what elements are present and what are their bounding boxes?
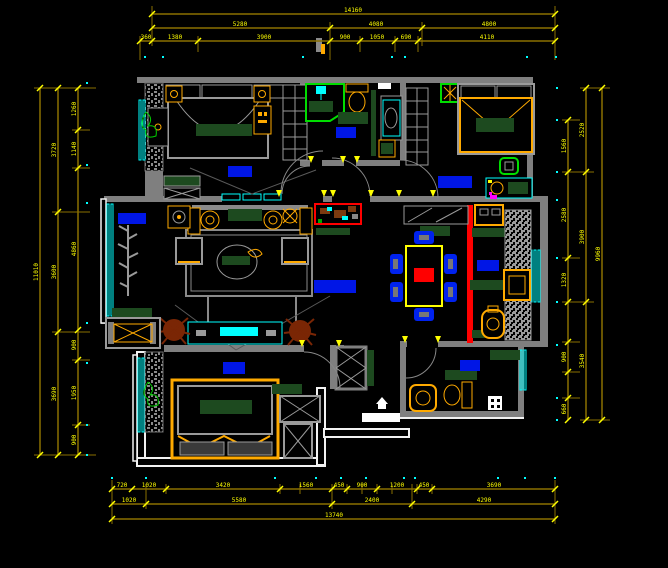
svg-text:3900: 3900 bbox=[257, 34, 272, 41]
red-feature-wall bbox=[467, 205, 473, 343]
low-cabinet bbox=[164, 176, 200, 186]
svg-text:2580: 2580 bbox=[561, 207, 568, 222]
svg-text:1050: 1050 bbox=[370, 34, 385, 41]
svg-text:360: 360 bbox=[141, 34, 152, 41]
dresser bbox=[148, 108, 168, 146]
svg-text:3900: 3900 bbox=[579, 229, 586, 244]
toilet bbox=[462, 382, 472, 408]
svg-text:900: 900 bbox=[561, 351, 568, 362]
room-label bbox=[223, 362, 245, 374]
svg-text:4290: 4290 bbox=[477, 497, 492, 504]
svg-text:1140: 1140 bbox=[71, 141, 78, 156]
svg-text:5280: 5280 bbox=[233, 21, 248, 28]
mirror bbox=[378, 83, 391, 89]
room-label bbox=[314, 280, 356, 293]
wash-basin bbox=[410, 385, 436, 411]
svg-text:11010: 11010 bbox=[33, 263, 40, 281]
room-label bbox=[460, 360, 480, 371]
svg-text:1950: 1950 bbox=[71, 385, 78, 400]
svg-text:1200: 1200 bbox=[390, 482, 405, 489]
sofa-arm bbox=[300, 208, 312, 234]
water-heater bbox=[482, 310, 504, 338]
svg-text:450: 450 bbox=[419, 482, 430, 489]
white-wall bbox=[324, 429, 409, 437]
svg-text:3600: 3600 bbox=[51, 264, 58, 279]
room-label bbox=[118, 213, 146, 224]
svg-text:4860: 4860 bbox=[71, 241, 78, 256]
chair bbox=[500, 158, 518, 174]
door-arc bbox=[406, 348, 436, 378]
bedroom-top-left bbox=[142, 85, 323, 199]
shower-head-icon bbox=[316, 86, 326, 94]
room-label bbox=[477, 260, 499, 271]
hatched-pier bbox=[145, 352, 163, 432]
dining-room bbox=[390, 206, 468, 321]
svg-text:3690: 3690 bbox=[51, 386, 58, 401]
svg-text:900: 900 bbox=[357, 482, 368, 489]
cad-floor-plan-canvas[interactable]: 1416052804080480036013803900900105069041… bbox=[0, 0, 668, 568]
bathroom-bottom bbox=[406, 348, 520, 411]
scale-bar bbox=[362, 413, 400, 422]
tv bbox=[220, 327, 258, 336]
svg-text:1320: 1320 bbox=[561, 272, 568, 287]
cushion bbox=[201, 211, 219, 229]
svg-text:900: 900 bbox=[340, 34, 351, 41]
room-label bbox=[438, 176, 472, 188]
svg-text:1020: 1020 bbox=[122, 497, 137, 504]
room-label bbox=[336, 127, 356, 138]
living-room bbox=[106, 205, 330, 350]
floor-plan-drawing: 1416052804080480036013803900900105069041… bbox=[0, 0, 668, 568]
plant-pot bbox=[158, 318, 190, 344]
toilet bbox=[346, 84, 368, 92]
svg-text:9960: 9960 bbox=[595, 246, 602, 261]
svg-text:1560: 1560 bbox=[299, 482, 314, 489]
svg-text:14160: 14160 bbox=[344, 7, 362, 14]
room-label bbox=[228, 166, 252, 177]
svg-text:450: 450 bbox=[334, 482, 345, 489]
svg-text:5580: 5580 bbox=[232, 497, 247, 504]
svg-text:720: 720 bbox=[117, 482, 128, 489]
armchair bbox=[282, 238, 308, 264]
stove bbox=[504, 270, 530, 300]
nightstand bbox=[166, 86, 182, 102]
hall-closet bbox=[336, 347, 366, 389]
basin-counter bbox=[381, 96, 402, 140]
svg-text:3720: 3720 bbox=[51, 142, 58, 157]
svg-text:900: 900 bbox=[71, 434, 78, 445]
svg-text:1560: 1560 bbox=[561, 138, 568, 153]
svg-text:4080: 4080 bbox=[369, 21, 384, 28]
svg-text:2520: 2520 bbox=[579, 122, 586, 137]
svg-text:660: 660 bbox=[561, 403, 568, 414]
svg-text:13740: 13740 bbox=[325, 512, 343, 519]
shoe-cabinet bbox=[404, 206, 468, 224]
svg-text:1260: 1260 bbox=[71, 101, 78, 116]
svg-text:690: 690 bbox=[401, 34, 412, 41]
svg-text:4110: 4110 bbox=[480, 34, 495, 41]
svg-text:3540: 3540 bbox=[579, 353, 586, 368]
cushion bbox=[264, 211, 282, 229]
white-wall bbox=[133, 355, 137, 461]
svg-text:3690: 3690 bbox=[487, 482, 502, 489]
armchair bbox=[176, 238, 202, 264]
svg-text:1020: 1020 bbox=[142, 482, 157, 489]
nightstand bbox=[254, 86, 270, 102]
svg-text:4800: 4800 bbox=[482, 21, 497, 28]
svg-text:3420: 3420 bbox=[216, 482, 231, 489]
svg-text:900: 900 bbox=[71, 339, 78, 350]
white-wall bbox=[101, 199, 106, 323]
north-symbol bbox=[376, 397, 388, 409]
svg-text:1380: 1380 bbox=[168, 34, 183, 41]
door-arc bbox=[282, 166, 310, 194]
svg-text:2400: 2400 bbox=[365, 497, 380, 504]
